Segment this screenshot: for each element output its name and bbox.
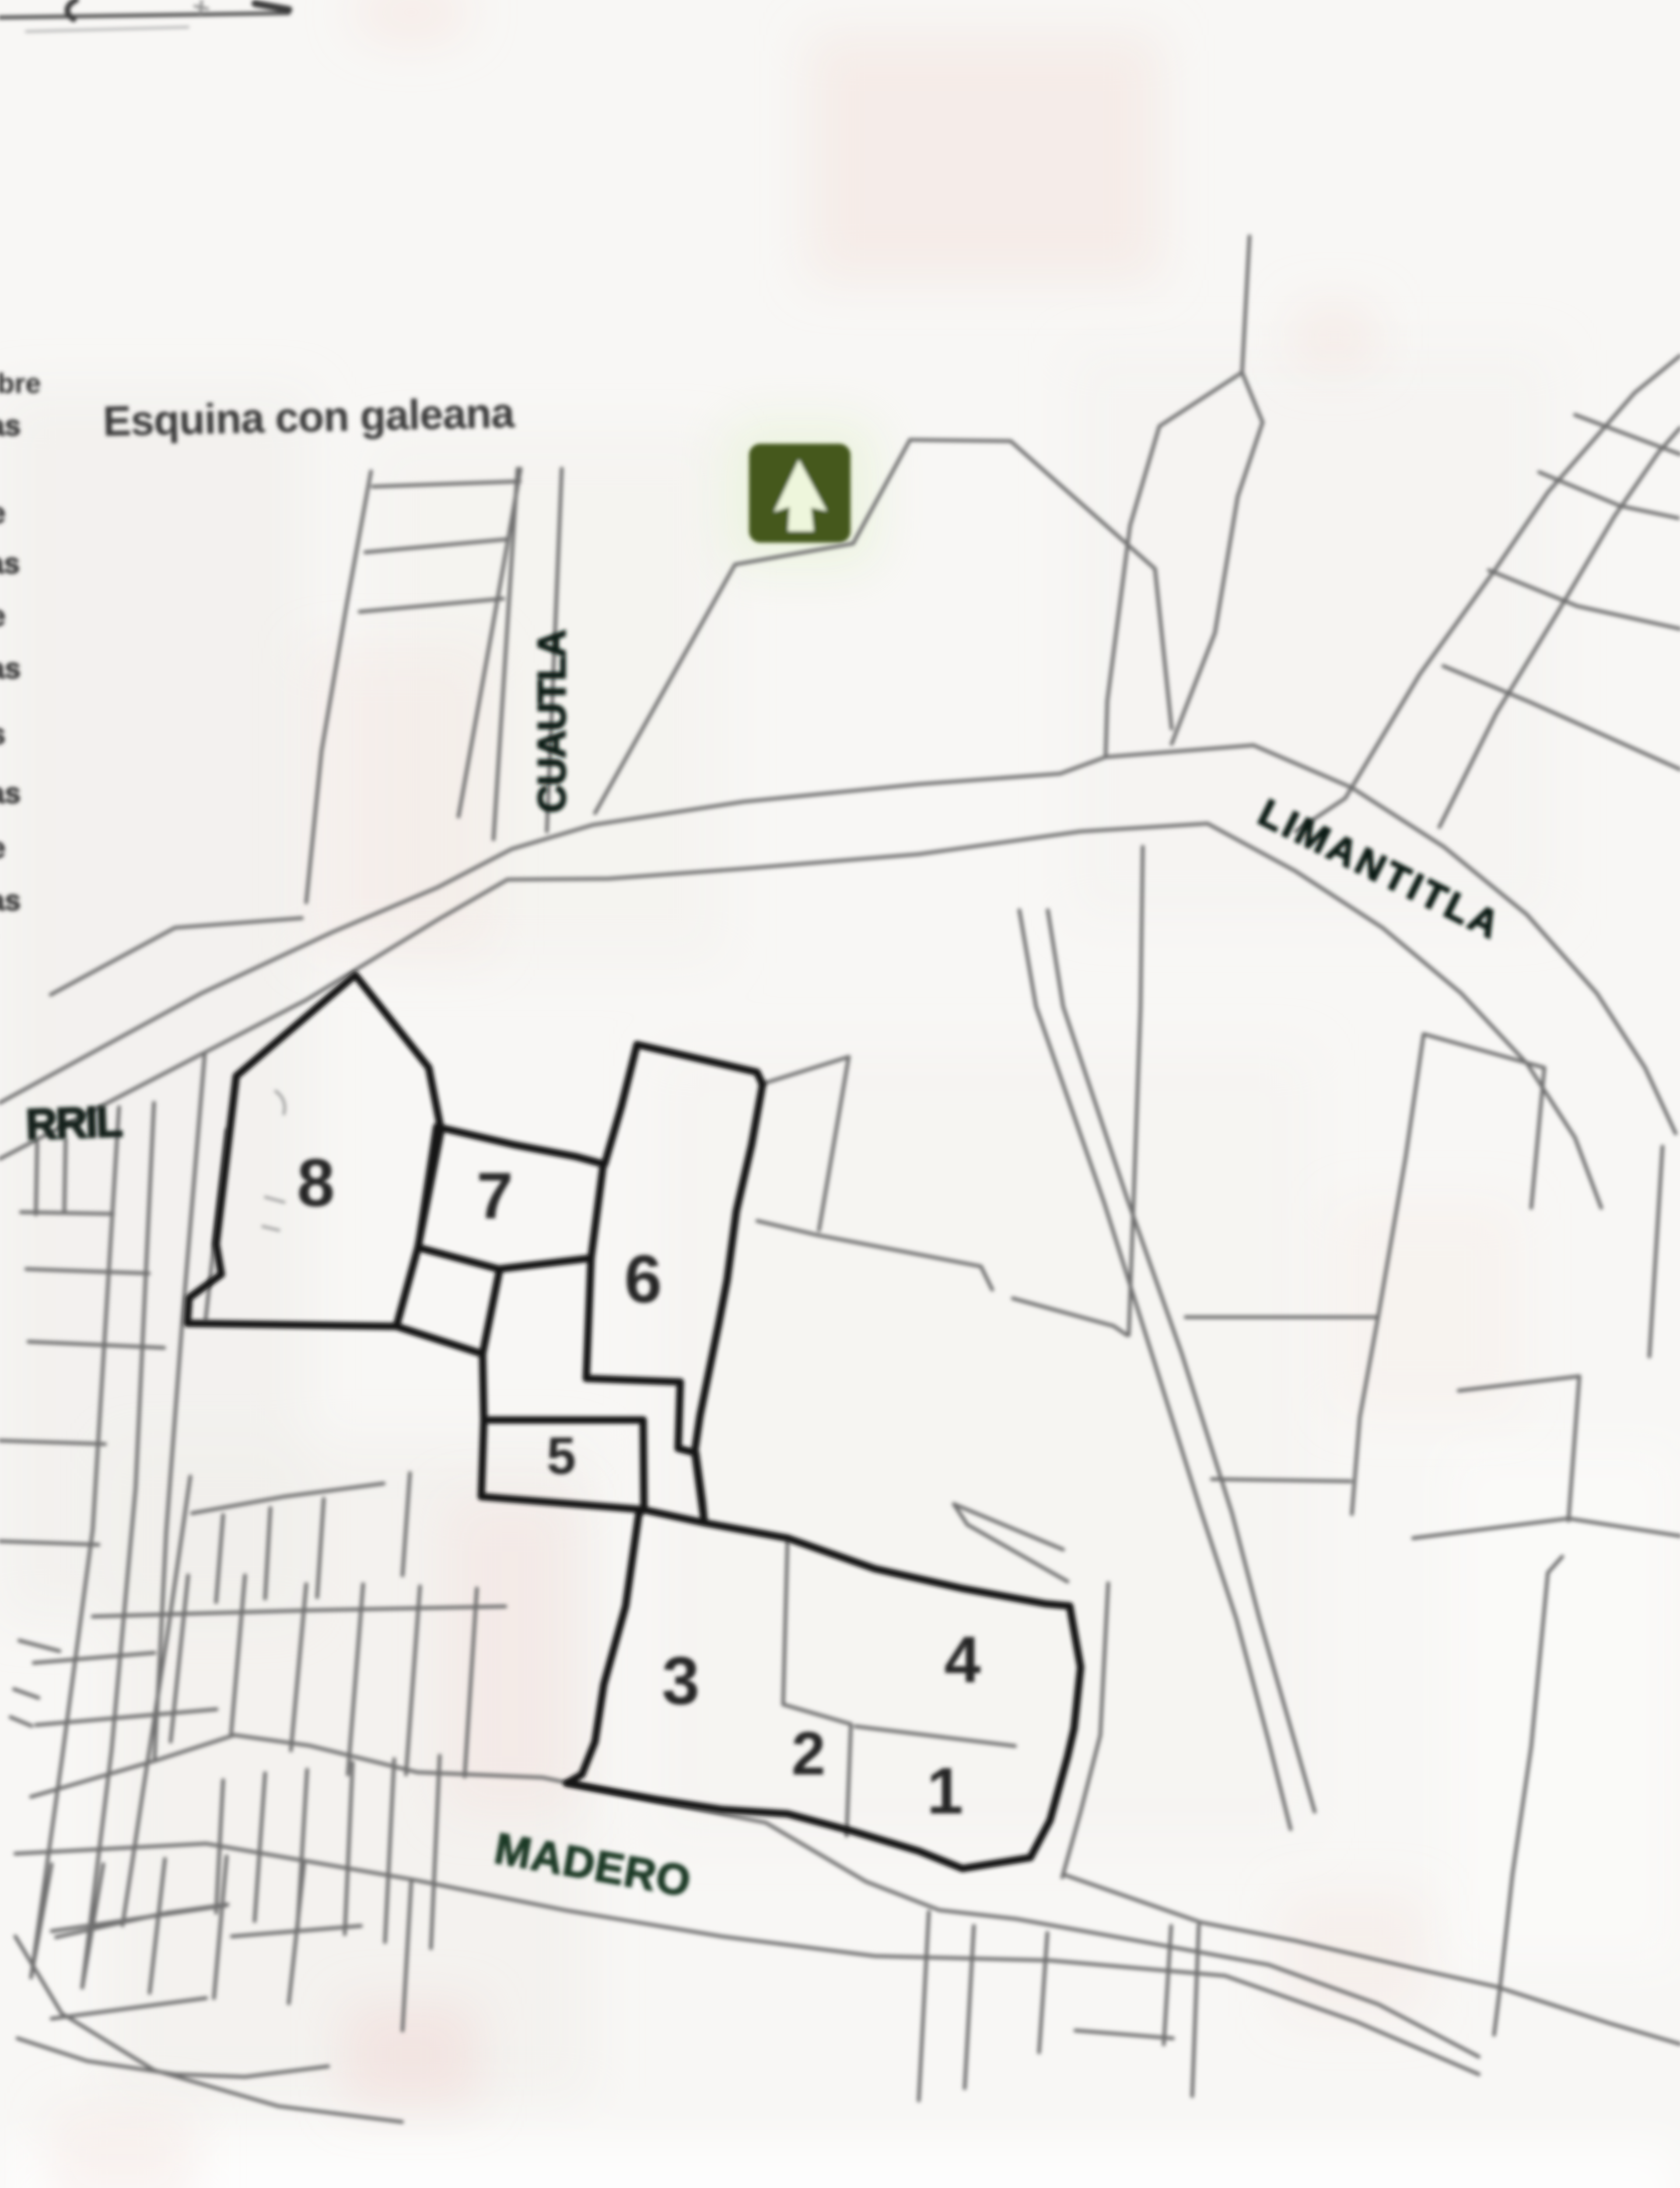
svg-text:as: as [0, 547, 20, 579]
svg-text:RRIL: RRIL [25, 1097, 124, 1149]
svg-text:CUAUTLA: CUAUTLA [530, 629, 574, 813]
svg-text:s: s [0, 718, 6, 750]
svg-text:as: as [0, 884, 21, 916]
svg-text:e: e [0, 497, 6, 529]
svg-text:as: as [0, 777, 21, 809]
svg-text:1: 1 [927, 1754, 963, 1827]
svg-text:3: 3 [662, 1643, 700, 1718]
svg-text:2: 2 [791, 1719, 826, 1788]
svg-text:7: 7 [476, 1159, 513, 1232]
svg-text:e: e [0, 831, 6, 864]
svg-text:5: 5 [547, 1427, 576, 1485]
svg-text:8: 8 [297, 1145, 335, 1220]
svg-text:Esquina con galeana: Esquina con galeana [102, 389, 515, 445]
svg-text:e: e [0, 600, 6, 632]
svg-text:4: 4 [944, 1623, 980, 1696]
svg-text:as: as [0, 652, 21, 684]
svg-text:bre: bre [0, 368, 41, 399]
svg-text:6: 6 [624, 1241, 662, 1317]
svg-text:as: as [0, 409, 21, 442]
